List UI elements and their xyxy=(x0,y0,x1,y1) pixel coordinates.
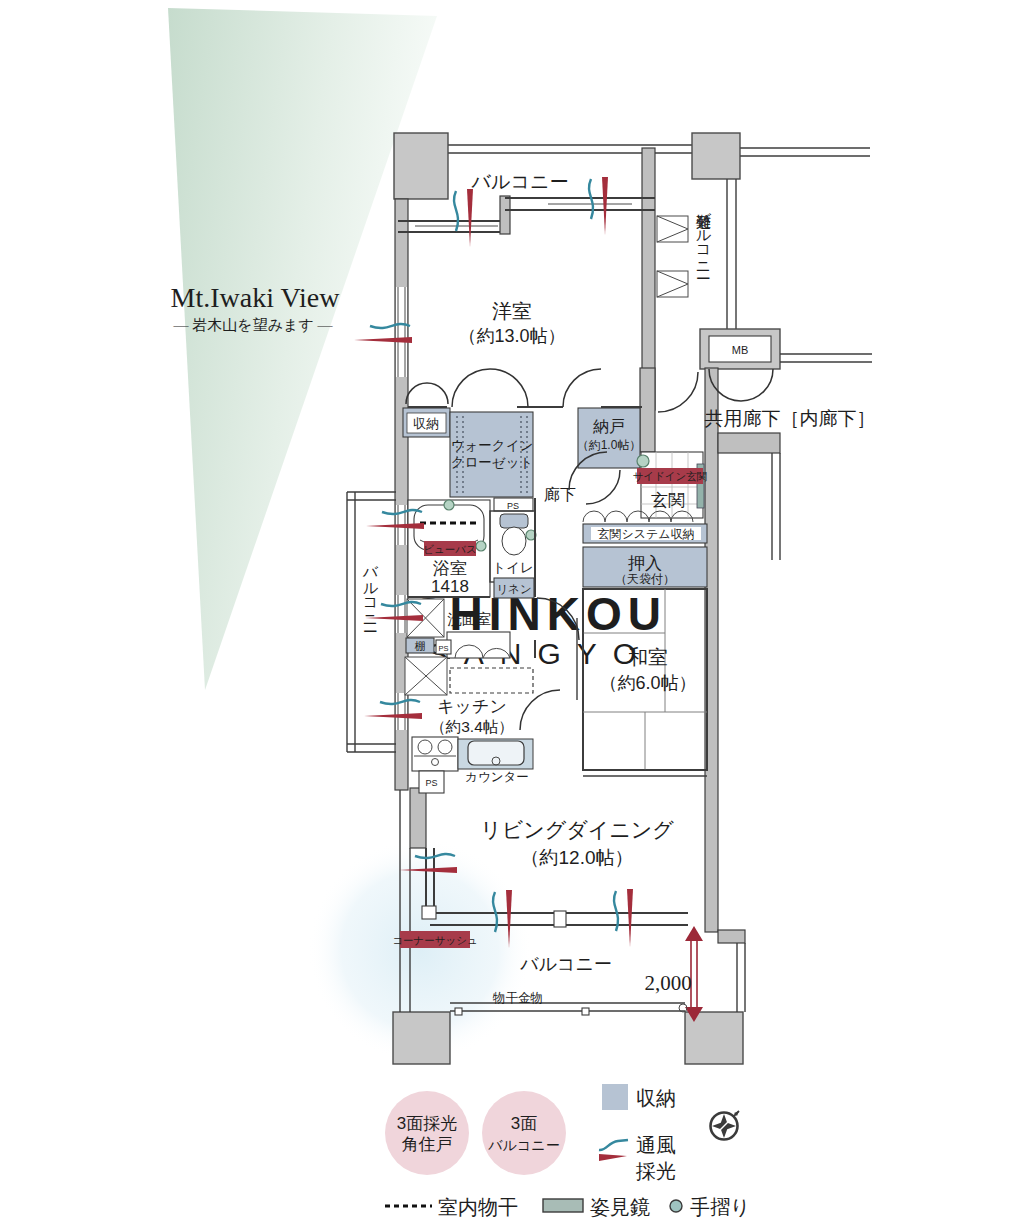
ps-label-1: PS xyxy=(507,501,519,511)
handrail-legend-icon xyxy=(670,1200,682,1212)
handrail-dot-entrance xyxy=(637,455,649,467)
kitchen-dashed-area xyxy=(450,668,533,693)
kitchen-name: キッチン xyxy=(437,697,507,716)
dimension-2000: 2,000 xyxy=(644,926,703,1022)
corner-sash-label: コーナーサッシュ xyxy=(392,934,477,946)
balcony-left-label: バルコニー xyxy=(362,555,379,633)
pillar-top-right xyxy=(692,133,740,179)
daylight-legend-label: 採光 xyxy=(635,1160,676,1182)
oshiire-size: （天袋付） xyxy=(615,572,675,586)
mirror-legend-label: 姿見鏡 xyxy=(590,1196,650,1218)
legend: 3面採光 角住戸 3面 バルコニー 収納 通風 採光 室内物干 姿見鏡 手摺り xyxy=(385,1084,750,1218)
bath-name: 浴室 xyxy=(433,559,467,578)
daylight-legend-icon xyxy=(599,1154,627,1161)
nando-size: （約1.0帖） xyxy=(577,438,642,452)
floor-plan-page: Mt.Iwaki View — 岩木山を望みます — SHINKOU SANGY… xyxy=(0,0,1035,1224)
genkan-west-wall xyxy=(640,368,655,452)
badge1-line1: 3面採光 xyxy=(397,1114,457,1133)
badge-3men-balcony xyxy=(482,1091,566,1175)
toilet-bowl xyxy=(502,527,526,555)
toilet-label: トイレ xyxy=(492,560,533,575)
rouka-label: 廊下 xyxy=(544,486,576,503)
oshiire: 押入 （天袋付） xyxy=(583,547,707,587)
balcony-bottom-label: バルコニー xyxy=(519,954,612,974)
linen-label: リネン xyxy=(496,583,531,595)
badge2-line2: バルコニー xyxy=(487,1137,559,1153)
dim-2000-label: 2,000 xyxy=(644,971,691,995)
monohoshi-label: 物干金物 xyxy=(492,991,543,1005)
sink xyxy=(468,741,524,765)
view-title: Mt.Iwaki View xyxy=(171,282,341,313)
room-yoshitsu: 洋室 （約13.0帖） バルコニー xyxy=(398,171,655,407)
bath-size: 1418 xyxy=(431,577,469,596)
kitchen-size: （約3.4帖） xyxy=(430,718,514,735)
badge1-line2: 角住戸 xyxy=(402,1135,453,1154)
balcony-top-label: バルコニー xyxy=(471,171,569,192)
east-wall-stub xyxy=(718,930,745,943)
counter-label: カウンター xyxy=(465,770,529,784)
ventilation-legend-label: 通風 xyxy=(636,1134,676,1156)
pillar-top-left xyxy=(394,133,448,199)
washitsu-size: （約6.0帖） xyxy=(599,673,696,693)
nando-name: 納戸 xyxy=(593,418,625,435)
floor-plan-svg: Mt.Iwaki View — 岩木山を望みます — SHINKOU SANGY… xyxy=(0,0,1035,1224)
wic-label-2: クローゼット xyxy=(451,455,534,470)
genkan-label: 玄関 xyxy=(651,491,685,510)
genkan-storage-label: 玄関システム収納 xyxy=(597,527,694,541)
evac-balcony: 避難バルコニー xyxy=(657,202,713,297)
ps-label-2: PS xyxy=(438,644,448,653)
storage-legend-swatch xyxy=(602,1084,628,1110)
mirror-legend-icon xyxy=(543,1199,583,1212)
corner-sash-corner xyxy=(422,906,436,919)
ld-name: リビングダイニング xyxy=(480,818,674,841)
indoor-drying-legend-label: 室内物干 xyxy=(438,1196,518,1218)
bathroom: ビューバス 浴室 1418 xyxy=(408,500,490,597)
compass-icon xyxy=(711,1111,740,1140)
side-in-genkan-label: サイドイン玄関 xyxy=(633,470,708,482)
kitchen: キッチン （約3.4帖） カウンター PS xyxy=(405,657,533,793)
ventilation-legend-icon xyxy=(599,1140,628,1150)
toilet-tank xyxy=(500,514,528,528)
storage-legend-label: 収納 xyxy=(636,1087,676,1109)
pillar-bottom-left xyxy=(393,1012,450,1064)
badge2-line1: 3面 xyxy=(511,1114,537,1133)
badge-3men-saikou xyxy=(385,1091,469,1175)
yoshitsu-size: （約13.0帖） xyxy=(458,326,565,346)
ld-size: （約12.0帖） xyxy=(521,847,634,868)
handrail-dot-bath-1 xyxy=(444,500,454,510)
oshiire-name: 押入 xyxy=(628,554,662,573)
corridor-wall-stub xyxy=(718,433,780,453)
shuno-label: 収納 xyxy=(413,416,439,431)
mb-label: MB xyxy=(732,344,749,356)
handrail-dot-bath-2 xyxy=(476,541,486,551)
ps-label-3: PS xyxy=(425,778,437,788)
handrail-legend-label: 手摺り xyxy=(690,1196,750,1218)
toilet-area: PS トイレ リネン xyxy=(490,498,536,598)
evac-balcony-label: 避難バルコニー xyxy=(695,202,712,280)
tana-label: 棚 xyxy=(415,640,426,652)
yoshitsu-name: 洋室 xyxy=(492,300,532,322)
vanity xyxy=(447,632,510,658)
washitsu-name: 和室 xyxy=(628,646,668,668)
wic-label-1: ウォークイン xyxy=(451,438,534,453)
corridor-label: 共用廊下［内廊下］ xyxy=(705,408,876,429)
senmen-label: 洗面室 xyxy=(447,611,491,627)
ld-west-wall xyxy=(410,788,426,848)
view-bath-label: ビューバス xyxy=(423,543,476,555)
view-subtitle: — 岩木山を望みます — xyxy=(173,317,334,333)
